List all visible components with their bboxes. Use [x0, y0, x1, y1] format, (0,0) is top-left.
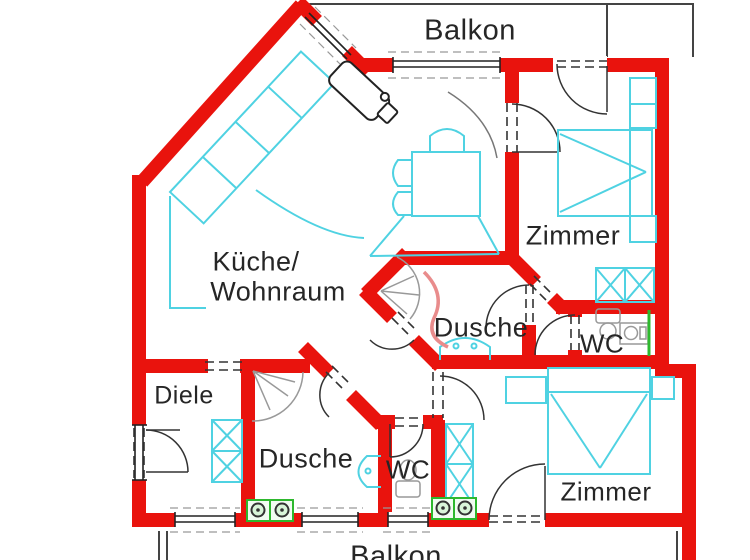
washer-icon [247, 500, 293, 521]
room-label-zimmer-top: Zimmer [526, 221, 620, 252]
room-label-zimmer-bottom: Zimmer [560, 477, 651, 508]
nightstand-icon [506, 377, 674, 403]
room-label-diele: Diele [154, 382, 213, 411]
dining-table-icon [370, 129, 499, 256]
sink-icon [620, 323, 648, 344]
room-label-dusche-upper: Dusche [434, 313, 529, 344]
floor-plan: Balkon Zimmer Küche/ Wohnraum Dusche WC … [0, 0, 750, 560]
counter-edge-curve [448, 92, 497, 158]
wardrobe-icon [596, 268, 654, 302]
room-label-dusche-lower: Dusche [259, 444, 354, 475]
room-label-kueche-line2: Wohnraum [210, 277, 346, 308]
room-label-balkon-top: Balkon [424, 15, 516, 48]
bed-icon [558, 130, 652, 216]
chair-icon [393, 192, 412, 215]
room-label-wc-upper: WC [580, 329, 624, 360]
room-label-kueche-line1: Küche/ [212, 247, 299, 278]
room-label-wc-lower: WC [386, 455, 430, 486]
shower-icon [252, 371, 303, 421]
chair-icon [393, 160, 412, 186]
room-label-balkon-bottom: Balkon [350, 541, 442, 560]
washer-icon [432, 498, 476, 519]
wardrobe-icon [212, 420, 242, 482]
chair-icon [430, 129, 464, 152]
bed-icon [548, 368, 650, 474]
wardrobe-icon [446, 424, 473, 504]
